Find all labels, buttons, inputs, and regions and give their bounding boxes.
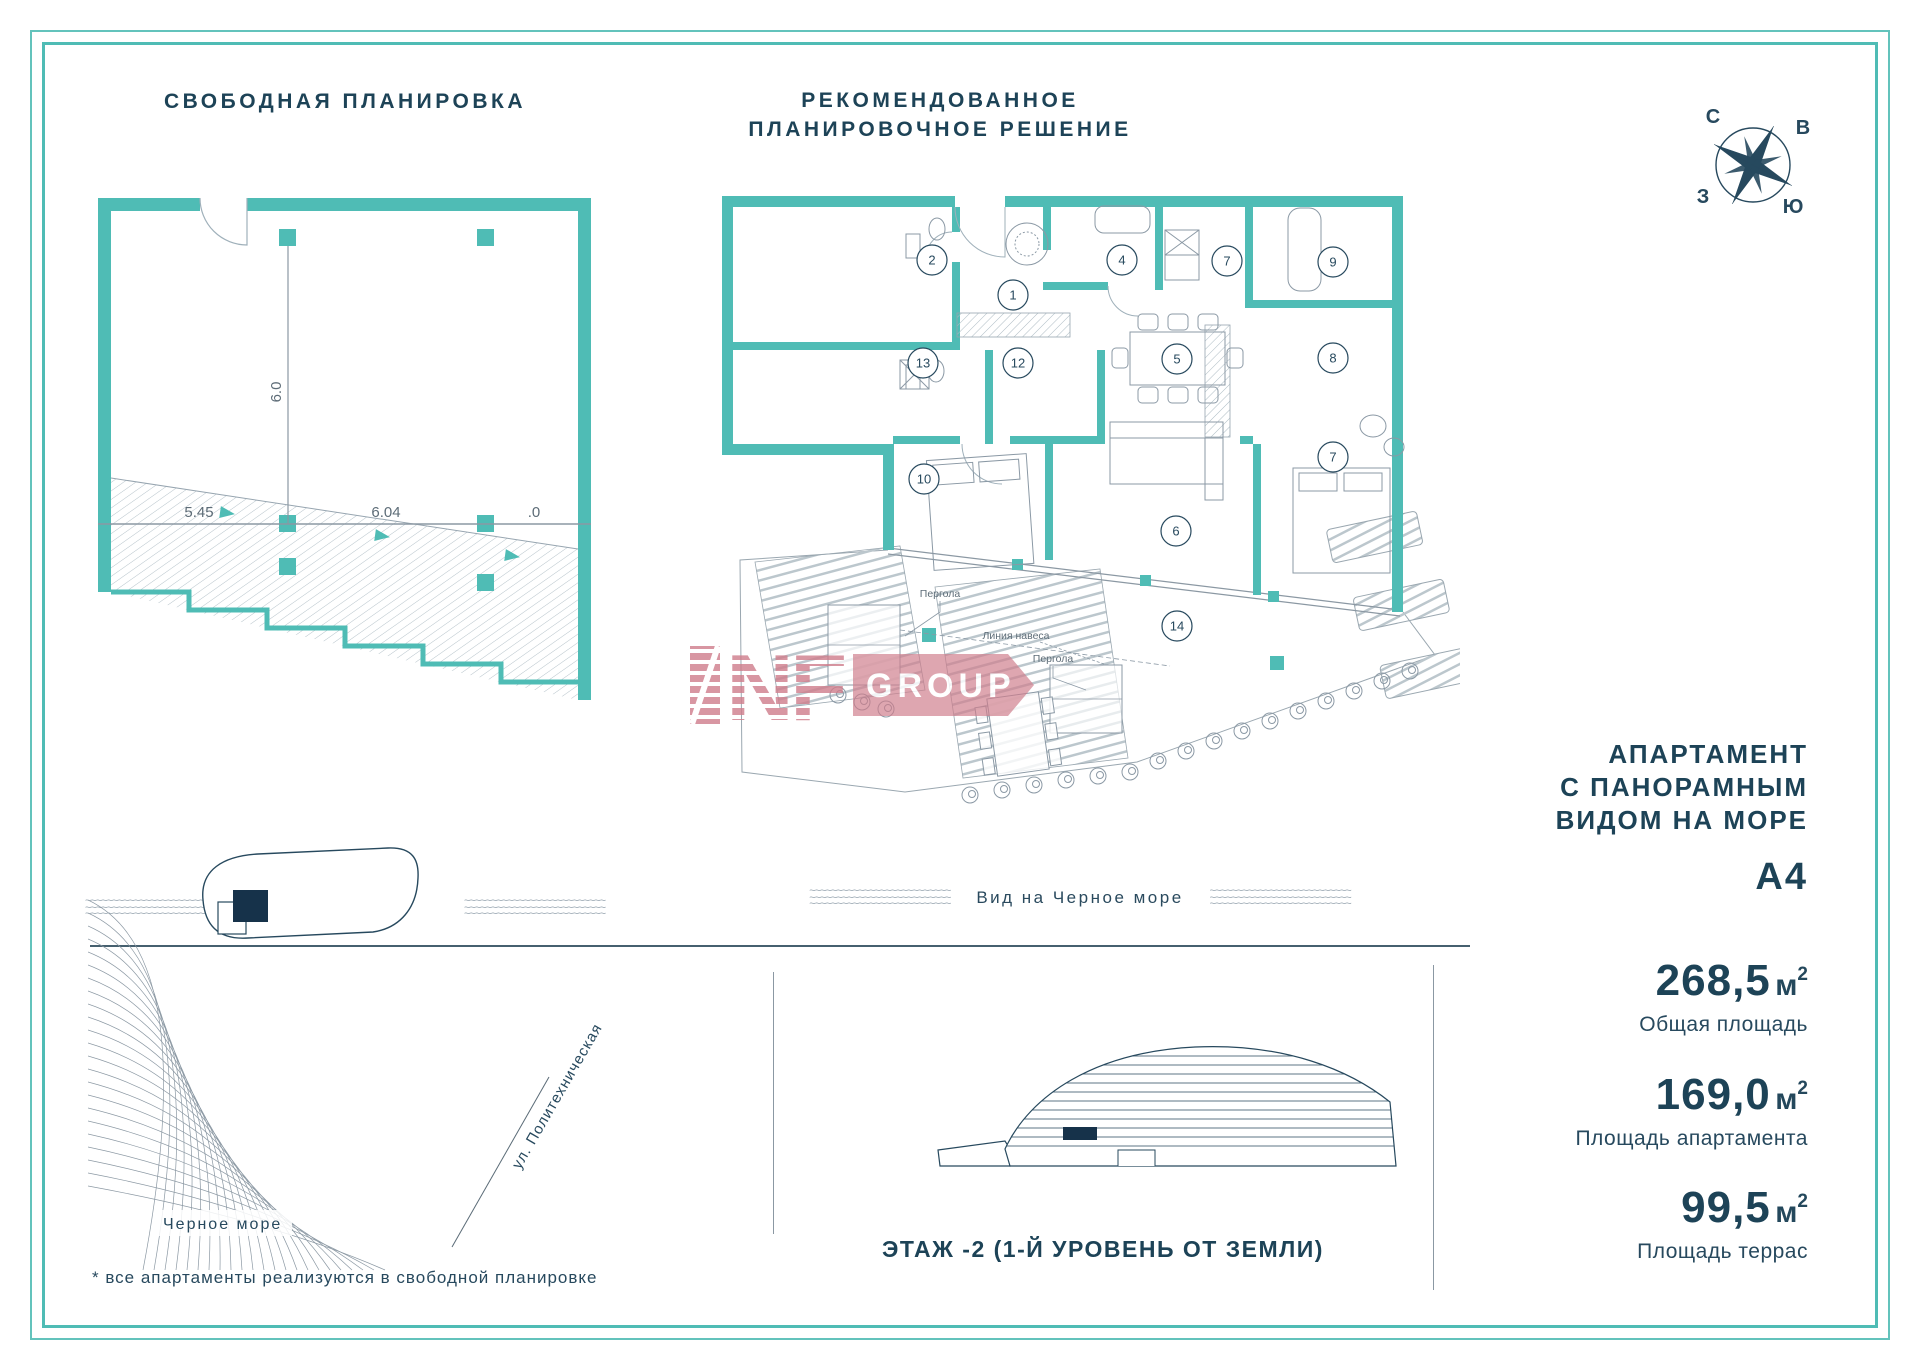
unit-title-line3: ВИДОМ НА МОРЕ (1460, 804, 1808, 837)
sea-view-caption-right: Вид на Черное море (976, 888, 1183, 908)
svg-text:13: 13 (916, 356, 930, 371)
stat-apartment-value: 169,0 (1656, 1070, 1771, 1119)
svg-text:7: 7 (1329, 450, 1336, 465)
detail-plan-caption-row: ~~~~~~~~~~~~~~~~~~~~~~~~~~ ~~~~~~~~~~~~~… (700, 888, 1460, 908)
free-plan-drawing: 5.45 6.04 .0 6.0 (85, 150, 605, 950)
svg-text:12: 12 (1011, 356, 1025, 371)
stat-apartment-sup: 2 (1797, 1078, 1808, 1099)
stat-total-label: Общая площадь (1460, 1013, 1808, 1037)
compass-west-label: З (1697, 186, 1710, 208)
stat-total-sup: 2 (1797, 964, 1808, 985)
dim-width-1: 5.45 (184, 504, 213, 521)
compass-south-label: Ю (1783, 196, 1804, 218)
compass-east-label: В (1796, 117, 1810, 139)
stat-apartment-area: 169,0 м2 Площадь апартамента (1460, 1070, 1808, 1151)
floor-level-label: ЭТАЖ -2 (1-Й УРОВЕНЬ ОТ ЗЕМЛИ) (773, 1236, 1433, 1263)
vertical-divider-2 (1433, 965, 1434, 1290)
pergola-label-1: Пергола (920, 588, 961, 600)
unit-code: А4 (1460, 856, 1808, 899)
stat-terrace-sup: 2 (1797, 1191, 1808, 1212)
unit-title-line1: АПАРТАМЕНТ (1460, 738, 1808, 771)
unit-title-block: АПАРТАМЕНТ С ПАНОРАМНЫМ ВИДОМ НА МОРЕ (1460, 738, 1808, 837)
sea-label: Черное море (163, 1216, 282, 1233)
street-label: ул. Политехническая (509, 1021, 606, 1172)
unit-title-line2: С ПАНОРАМНЫМ (1460, 771, 1808, 804)
dimension-lines: 5.45 6.04 .0 6.0 (98, 246, 591, 524)
stat-total-area: 268,5 м2 Общая площадь (1460, 956, 1808, 1037)
detail-plan-title: РЕКОМЕНДОВАННОЕ ПЛАНИРОВОЧНОЕ РЕШЕНИЕ (700, 86, 1180, 144)
svg-text:14: 14 (1170, 619, 1184, 634)
floor-level-marker (1063, 1127, 1097, 1140)
detail-plan-title-line2: ПЛАНИРОВОЧНОЕ РЕШЕНИЕ (700, 115, 1180, 144)
watermark-banner-text: GROUP (866, 667, 1016, 705)
free-plan-title: СВОБОДНАЯ ПЛАНИРОВКА (85, 90, 605, 114)
svg-text:7: 7 (1223, 254, 1230, 269)
svg-text:8: 8 (1329, 351, 1336, 366)
svg-text:9: 9 (1329, 255, 1336, 270)
detail-plan-walls (722, 196, 1403, 612)
svg-text:6: 6 (1172, 524, 1179, 539)
svg-text:5: 5 (1173, 352, 1180, 367)
compass-rose-icon: С В З Ю (1690, 78, 1820, 228)
detail-plan-drawing: Пергола Пергола Линия навеса 12479581213… (700, 150, 1460, 950)
stat-apartment-unit: м (1775, 1083, 1797, 1116)
street-line (452, 1077, 549, 1247)
watermark-letters: NF (726, 642, 844, 728)
canopy-line-label: Линия навеса (982, 630, 1049, 642)
terrace-hatch (111, 478, 578, 700)
detail-plan-title-line1: РЕКОМЕНДОВАННОЕ (700, 86, 1180, 115)
dim-height: 6.0 (268, 382, 285, 403)
stat-terrace-value: 99,5 (1681, 1183, 1771, 1232)
dim-width-2: 6.04 (371, 504, 400, 521)
nf-group-watermark: NF GROUP (688, 642, 1048, 728)
stat-total-value: 268,5 (1656, 956, 1771, 1005)
stat-apartment-label: Площадь апартамента (1460, 1127, 1808, 1151)
stat-total-unit: м (1775, 969, 1797, 1002)
dim-width-3: .0 (528, 504, 541, 521)
svg-text:2: 2 (928, 253, 935, 268)
svg-text:10: 10 (917, 472, 931, 487)
building-footprint (203, 848, 418, 938)
site-map: Черное море ул. Политехническая (88, 840, 688, 1310)
svg-text:1: 1 (1009, 288, 1016, 303)
stat-terrace-area: 99,5 м2 Площадь террас (1460, 1183, 1808, 1264)
svg-text:4: 4 (1118, 253, 1125, 268)
unit-location-marker (233, 890, 268, 922)
door-swing-icon (200, 198, 247, 245)
stat-terrace-unit: м (1775, 1196, 1797, 1229)
footnote: * все апартаменты реализуются в свободно… (92, 1268, 732, 1288)
wave-lines: ~~~~~~~~~~~~~~~~~~~~~~~~~~ ~~~~~~~~~~~~~… (809, 888, 950, 908)
stat-terrace-label: Площадь террас (1460, 1240, 1808, 1264)
compass-north-label: С (1706, 106, 1720, 128)
wave-lines: ~~~~~~~~~~~~~~~~~~~~~~~~~~ ~~~~~~~~~~~~~… (1210, 888, 1351, 908)
